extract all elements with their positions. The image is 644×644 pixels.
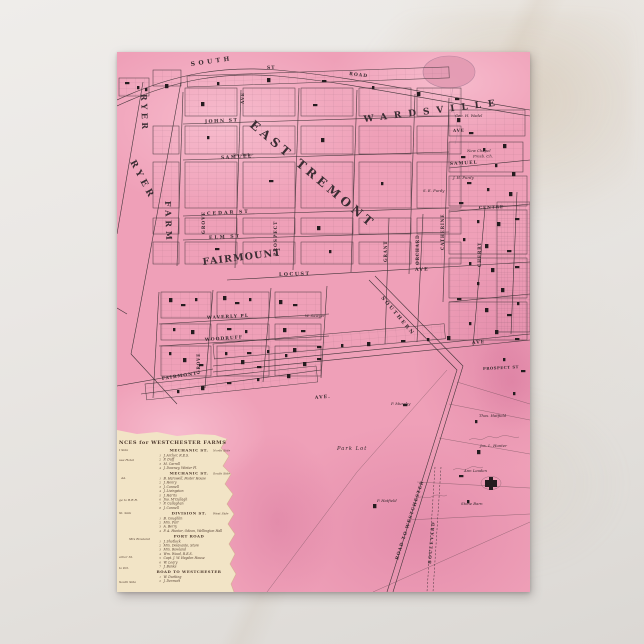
building-footprint [513, 392, 515, 395]
marble-surface: EAST TREMONTWARDSVILLEFAIRMOUNTRYERRYERF… [0, 0, 644, 644]
building-footprint [249, 298, 251, 301]
city-block [161, 324, 211, 340]
building-footprint [515, 218, 519, 220]
city-block [185, 126, 237, 154]
building-footprint [137, 86, 139, 89]
legend-entry: J. Connell [163, 506, 179, 510]
building-footprint [485, 244, 488, 248]
map-owner-label: Stone Barn [461, 501, 483, 506]
building-footprint [515, 338, 519, 340]
building-footprint [467, 182, 471, 184]
building-footprint [285, 354, 287, 357]
map-owner-label: P. Murphy [390, 401, 411, 406]
building-footprint [521, 370, 525, 372]
map-owner-park-lot: Park Lot [336, 446, 367, 452]
map-street-locust: LOCUST [279, 271, 311, 278]
map-street-ave-vertical: AVE [240, 92, 245, 105]
map-label-ryer-farm: RYER [139, 94, 150, 133]
building-footprint [169, 352, 171, 355]
building-footprint [317, 226, 320, 230]
map-owner-label: J. H. Purdy [452, 175, 475, 180]
building-footprint [517, 302, 519, 305]
building-footprint [165, 84, 168, 88]
city-block [301, 126, 353, 154]
building-footprint [267, 78, 270, 82]
building-footprint [477, 220, 479, 223]
building-footprint [495, 164, 497, 167]
map-street-ave: AVE [452, 128, 465, 133]
city-block [359, 162, 411, 208]
building-footprint [401, 340, 405, 342]
building-footprint [215, 248, 219, 250]
building-footprint [341, 344, 343, 347]
building-footprint [509, 192, 512, 196]
legend-clipped-fragment: to P.O. [119, 566, 129, 570]
building-footprint [495, 330, 498, 334]
building-footprint [227, 382, 231, 384]
building-footprint [469, 132, 473, 134]
building-footprint [459, 202, 463, 204]
building-footprint [485, 308, 488, 312]
legend-section-title: ROAD TO WESTCHESTER [157, 569, 222, 574]
map-street-orchard: ORCHARD [415, 235, 420, 265]
building-footprint [463, 238, 465, 241]
building-footprint [293, 304, 297, 306]
building-footprint [283, 328, 286, 332]
building-footprint [491, 268, 494, 272]
building-footprint [177, 390, 179, 393]
building-footprint [245, 330, 247, 333]
legend-entry: P. A. Hunter, Odeon, Wellington Hall [163, 529, 223, 533]
building-footprint [457, 118, 460, 122]
map-owner-label: Thos. Hatfield [479, 413, 507, 418]
building-footprint [201, 102, 204, 106]
building-footprint [427, 338, 429, 341]
city-block [301, 218, 353, 234]
building-footprint [367, 342, 370, 346]
legend-entry-number: 7 [159, 565, 161, 569]
building-footprint [329, 250, 331, 253]
building-footprint [512, 172, 515, 176]
legend-entry-number: 4 [158, 529, 161, 533]
map-street-ave-mid: AVE [471, 339, 486, 346]
building-footprint [459, 475, 463, 477]
building-footprint [181, 304, 185, 306]
building-footprint [301, 330, 305, 332]
map-street-centre: CENTRE [479, 204, 504, 210]
building-footprint [417, 92, 420, 96]
map-owner-label: P. Hatfield [376, 498, 397, 503]
city-block [301, 242, 353, 264]
building-footprint [507, 314, 511, 316]
legend-entry: J. Banks [163, 565, 177, 569]
legend-references: NCES for WESTCHESTER FARMSMECHANIC ST.No… [117, 430, 236, 592]
building-footprint [241, 360, 244, 364]
building-footprint [313, 104, 317, 106]
city-block [243, 88, 295, 116]
building-footprint [173, 328, 175, 331]
city-block [359, 126, 411, 154]
building-footprint [503, 358, 505, 361]
building-footprint [227, 328, 231, 330]
map-label-ryer-farm: FARM [163, 201, 174, 244]
city-block [185, 218, 237, 234]
building-footprint [321, 138, 324, 142]
building-footprint [469, 262, 471, 265]
building-footprint [461, 156, 465, 158]
building-footprint [469, 322, 471, 325]
building-footprint [457, 298, 461, 300]
building-footprint [503, 144, 506, 148]
building-footprint [125, 82, 129, 84]
legend-clipped-fragment: ge to B.R.R. [119, 498, 138, 502]
building-footprint [201, 386, 204, 390]
legend-entry: J. Dermott [163, 579, 181, 583]
legend-clipped-fragment: 44. [120, 476, 126, 480]
map-street-south-st: ST [267, 65, 276, 71]
map-street-grove: GROVE [202, 211, 207, 234]
map-owner-label: S. E. Purdy [423, 188, 445, 193]
legend-section-title: MECHANIC ST. [170, 448, 209, 453]
building-footprint [269, 180, 273, 182]
legend-clipped-fragment: St. Side [119, 511, 131, 515]
vintage-map-artwork: EAST TREMONTWARDSVILLEFAIRMOUNTRYERRYERF… [117, 52, 530, 592]
legend-header: NCES for WESTCHESTER FARMS [119, 440, 226, 446]
estate-building [489, 477, 493, 490]
legend-section-title: MECHANIC ST. [170, 471, 209, 476]
legend-clipped-fragment: use Hotel [119, 458, 134, 462]
map-owner-label: Jos. L. Hunter [479, 443, 507, 448]
building-footprint [183, 358, 186, 362]
building-footprint [169, 298, 172, 302]
building-footprint [195, 298, 197, 301]
map-street-locust-ave: AVE [414, 267, 429, 274]
building-footprint [279, 300, 282, 304]
building-footprint [372, 86, 374, 89]
map-street-grove-south: GROVE [196, 353, 201, 374]
building-footprint [293, 348, 296, 352]
map-street-grant: GRANT [383, 241, 388, 262]
map-street-cherry: CHERRY [477, 242, 482, 267]
building-footprint [267, 350, 269, 353]
building-footprint [501, 288, 504, 292]
building-footprint [487, 188, 489, 191]
building-footprint [257, 366, 261, 368]
building-footprint [373, 504, 376, 508]
building-footprint [497, 222, 500, 226]
city-block [185, 88, 237, 116]
map-owner-label: New Chapel [466, 148, 491, 153]
building-footprint [475, 420, 477, 423]
legend-section-side: West Side [213, 511, 229, 515]
map-street-catherine: CATHERINE [440, 214, 445, 250]
map-owner-label: W. Sawyer [305, 313, 325, 318]
building-footprint [447, 336, 450, 340]
city-block [153, 242, 179, 264]
building-footprint [381, 182, 383, 185]
city-block [301, 88, 353, 116]
legend-entry-number: 2 [158, 579, 161, 583]
map-owner-label: Presb. Ch. [472, 154, 493, 159]
legend-entry-number: 8 [159, 506, 161, 510]
building-footprint [217, 82, 219, 85]
building-footprint [247, 352, 251, 354]
vintage-map-postcard: EAST TREMONTWARDSVILLEFAIRMOUNTRYERRYERF… [117, 52, 530, 592]
legend-clipped-fragment: South Side [119, 580, 136, 584]
map-owner-label: Geo. H. Wadel [455, 113, 483, 118]
building-footprint [303, 362, 306, 366]
building-footprint [477, 282, 479, 285]
building-footprint [507, 250, 511, 252]
city-block [243, 218, 295, 234]
building-footprint [477, 450, 480, 454]
building-footprint [317, 346, 321, 348]
city-block [153, 126, 179, 154]
city-block [161, 292, 211, 318]
map-owner-label: Ann Leaden [463, 468, 488, 473]
legend-section-side: North Side [212, 449, 230, 453]
building-footprint [191, 330, 194, 334]
city-block [243, 162, 295, 208]
building-footprint [287, 374, 290, 378]
building-footprint [322, 80, 326, 82]
dense-block [497, 202, 530, 332]
map-owner-label: Jas. Butler [232, 152, 253, 157]
map-street-prospect: PROSPECT [274, 221, 279, 256]
building-footprint [317, 358, 321, 360]
building-footprint [515, 266, 519, 268]
building-footprint [225, 352, 227, 355]
legend-entry: J. Downey, Winter Pl. [163, 466, 198, 470]
building-footprint [223, 296, 226, 300]
legend-section-title: PORT ROAD [174, 533, 205, 538]
legend-clipped-fragment: t Side [119, 448, 128, 452]
building-footprint [455, 98, 459, 100]
legend-clipped-fragment: arbor St. [119, 555, 133, 559]
legend-section-title: DIVISION ST. [172, 510, 207, 515]
building-footprint [207, 136, 209, 139]
legend-clipped-fragment: Mrs Rowland [128, 537, 150, 541]
building-footprint [235, 302, 239, 304]
legend-entry-number: 4 [158, 466, 161, 470]
legend-section-side: South Side [213, 472, 230, 476]
city-block [185, 162, 237, 208]
building-footprint [145, 88, 147, 91]
building-footprint [257, 378, 259, 381]
